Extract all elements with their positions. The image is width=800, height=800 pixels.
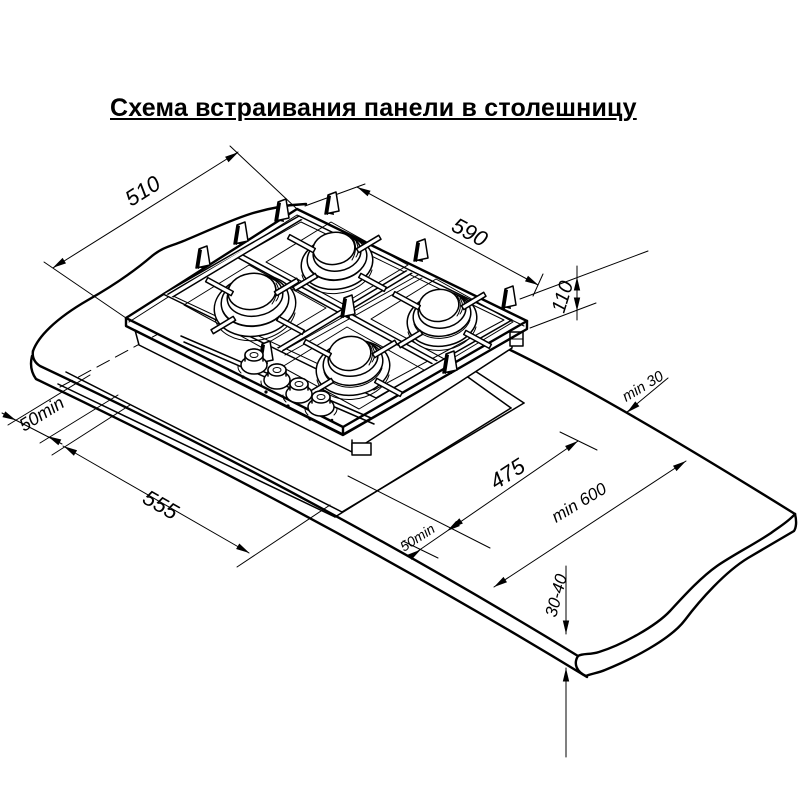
svg-text:min 30: min 30 [619,367,667,405]
svg-text:510: 510 [120,170,165,211]
svg-text:50min: 50min [16,392,68,435]
svg-text:590: 590 [448,212,493,252]
svg-text:110: 110 [548,279,578,316]
svg-text:555: 555 [139,485,184,525]
